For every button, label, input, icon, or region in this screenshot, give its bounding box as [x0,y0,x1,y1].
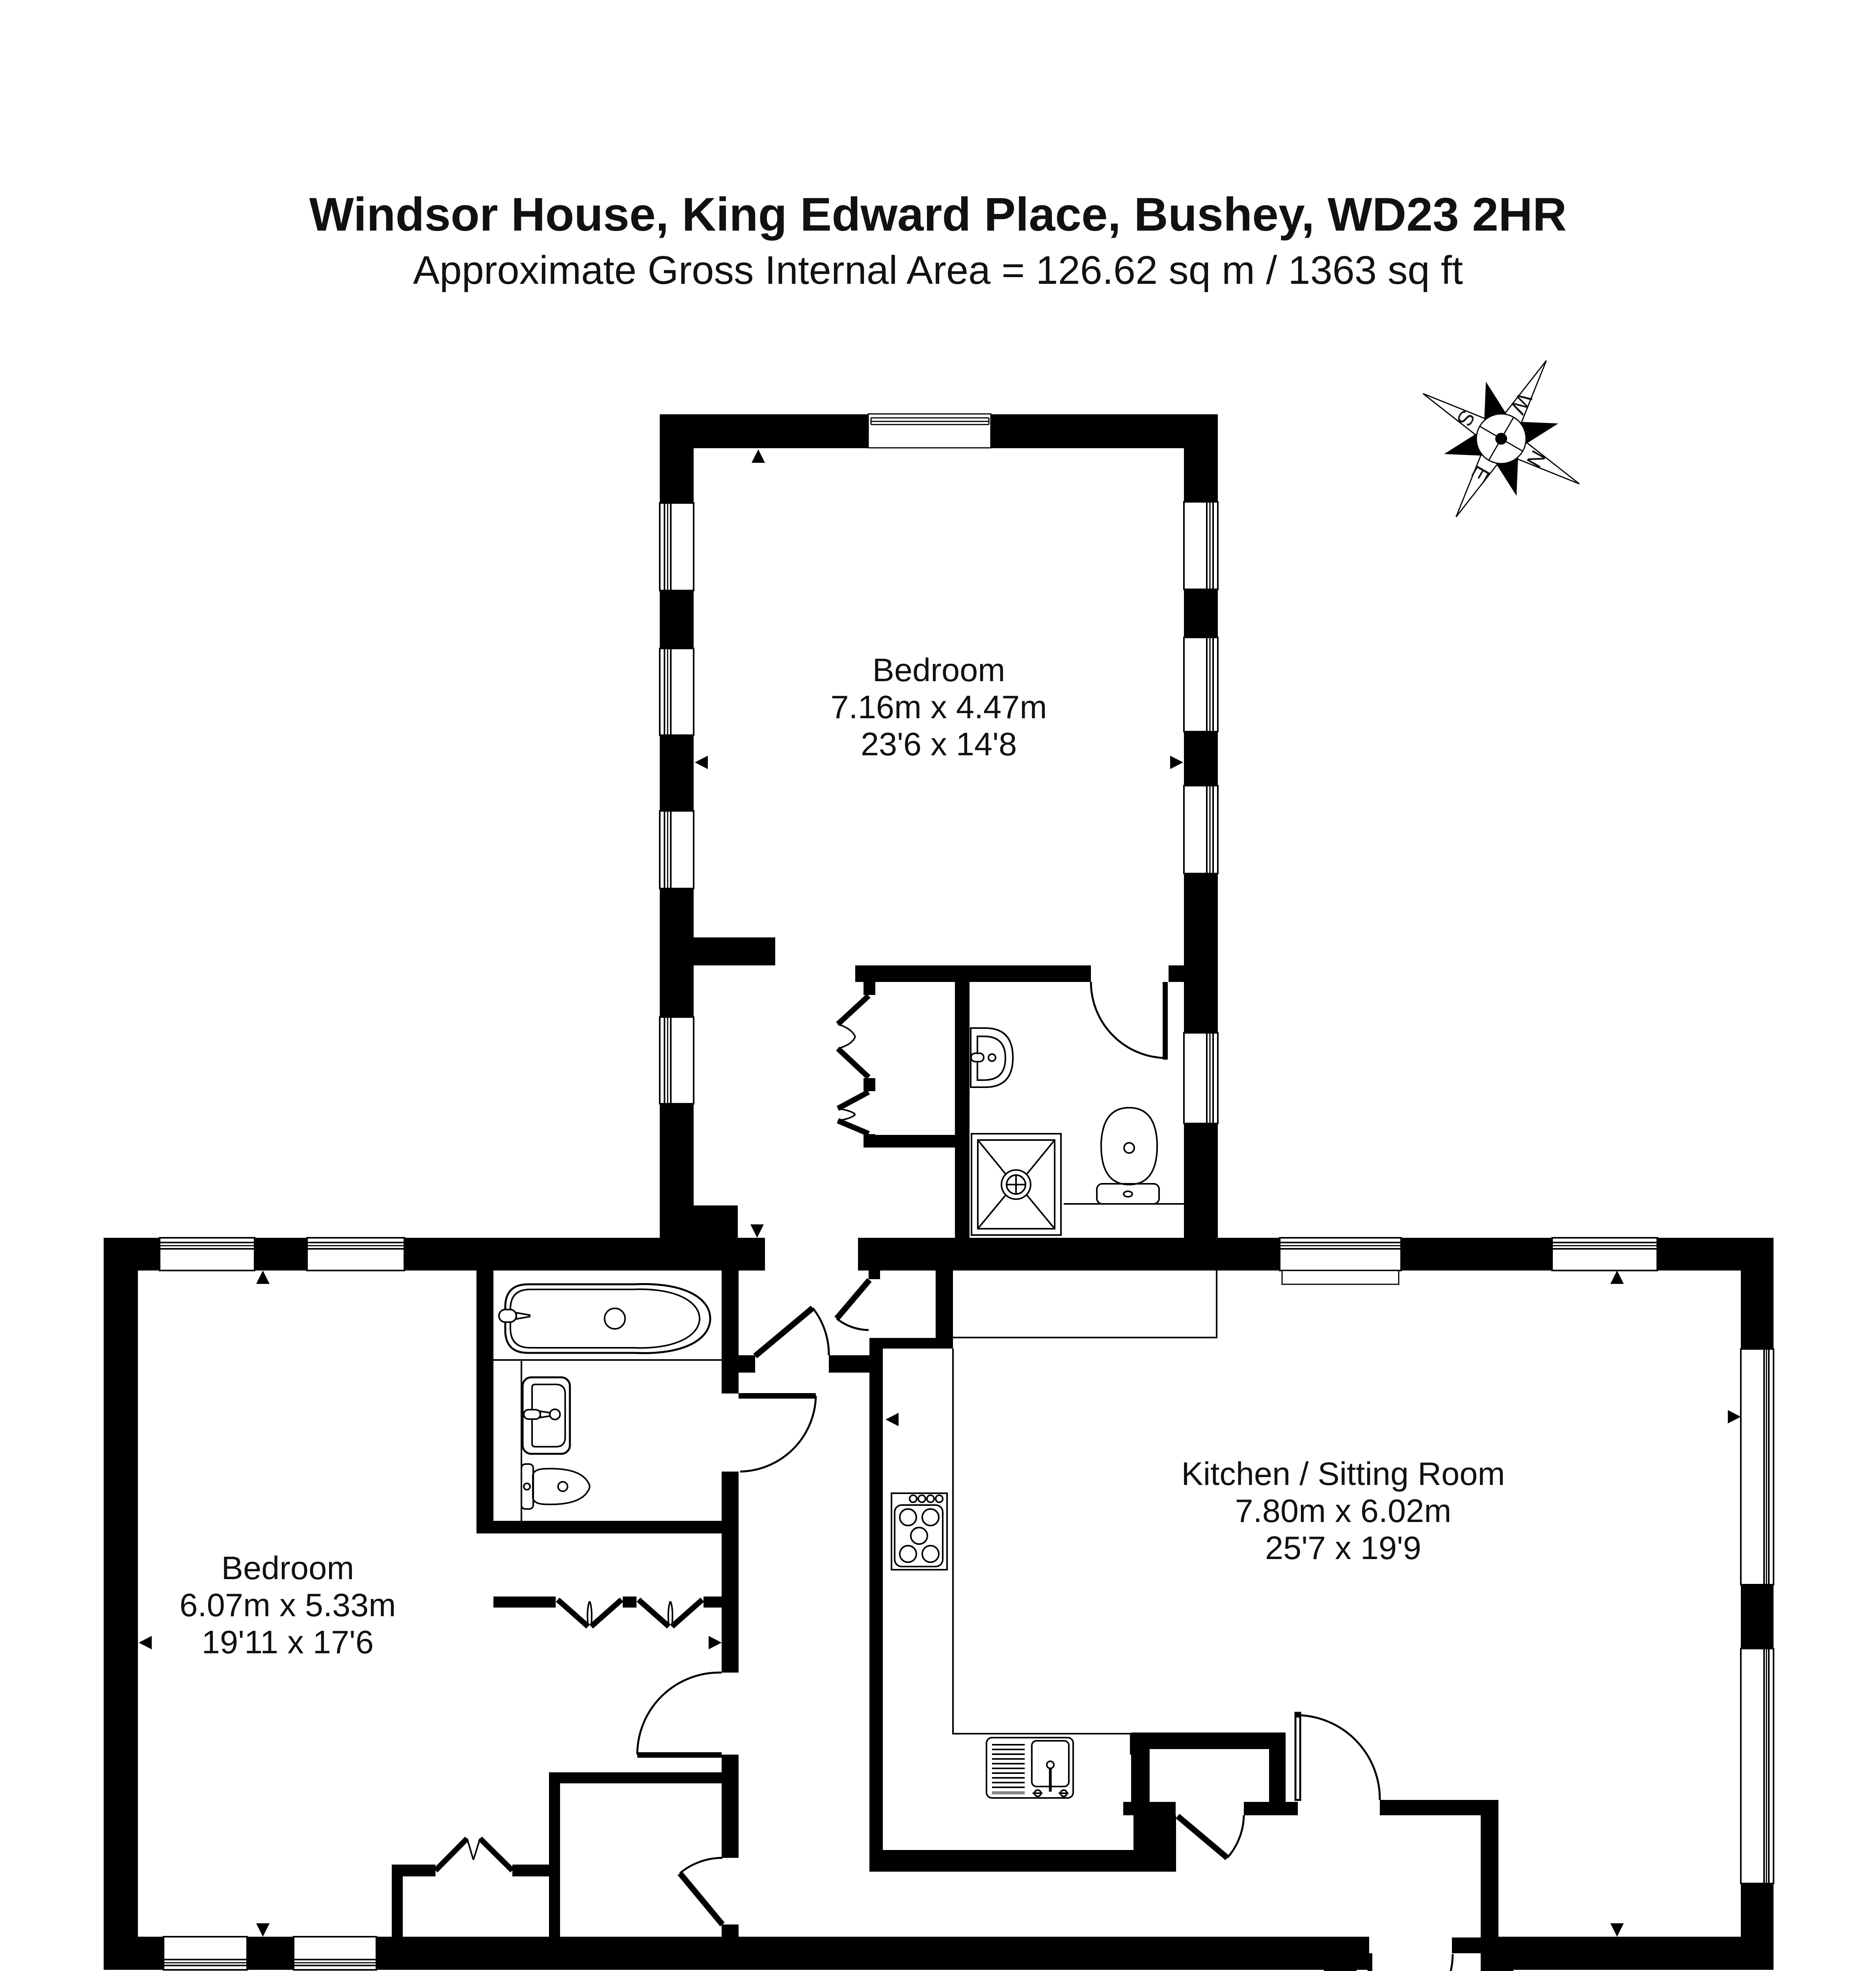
svg-text:19'11 x 17'6: 19'11 x 17'6 [202,1624,374,1660]
svg-text:Approximate Gross Internal Are: Approximate Gross Internal Area = 126.62… [413,248,1463,292]
svg-text:6.07m x 5.33m: 6.07m x 5.33m [180,1587,396,1623]
svg-text:7.16m x 4.47m: 7.16m x 4.47m [831,689,1047,725]
svg-text:23'6 x 14'8: 23'6 x 14'8 [861,726,1017,762]
svg-text:Windsor House, King Edward Pla: Windsor House, King Edward Place, Bushey… [309,188,1567,241]
svg-text:Kitchen / Sitting Room: Kitchen / Sitting Room [1181,1455,1505,1492]
svg-text:7.80m x 6.02m: 7.80m x 6.02m [1235,1492,1452,1529]
svg-text:25'7 x 19'9: 25'7 x 19'9 [1265,1529,1421,1566]
svg-text:Bedroom: Bedroom [873,652,1005,688]
svg-text:Bedroom: Bedroom [221,1550,354,1586]
